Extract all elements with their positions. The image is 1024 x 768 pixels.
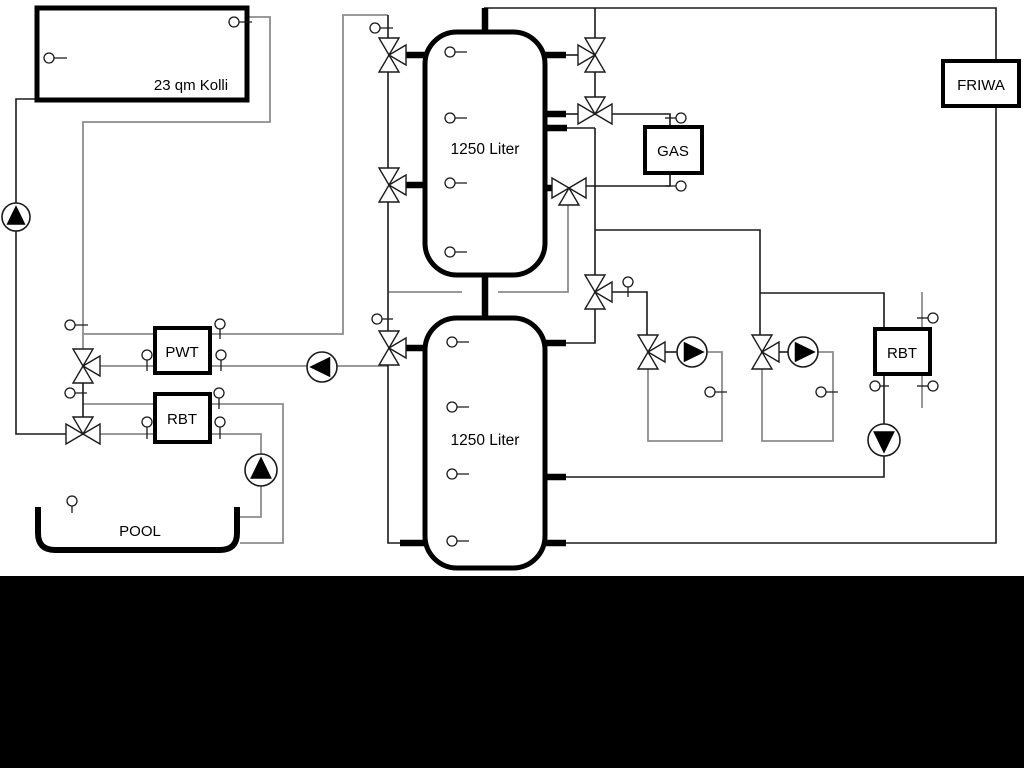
rbt-left-box-label: RBT <box>167 411 197 428</box>
sensor-bulb-icon <box>372 314 382 324</box>
collector-box-label: 23 qm Kolli <box>154 77 228 94</box>
heating1-supply-pipe <box>612 292 647 335</box>
heating1-pump <box>677 337 707 367</box>
sensor-bulb-icon <box>44 53 54 63</box>
sensor-bulb-icon <box>65 388 75 398</box>
sensor-bulb-icon <box>816 387 826 397</box>
left-riser-d <box>388 365 402 543</box>
sensor-bulb-icon <box>676 113 686 123</box>
sensor-bulb-icon <box>447 402 457 412</box>
sensor-bulb-icon <box>142 417 152 427</box>
valve-tank2-left <box>379 331 406 365</box>
valve-gas-supply <box>578 97 612 124</box>
tank2-upper-right-pipe <box>566 309 595 343</box>
pool-pump <box>245 454 277 486</box>
sensor-rbt-out-top <box>214 388 224 409</box>
sensor-bulb-icon <box>142 350 152 360</box>
sensor-rbt-in-left <box>142 417 152 439</box>
pwt-pump <box>307 352 337 382</box>
sensor-bulb-icon <box>928 381 938 391</box>
valve-tank1-right-top <box>578 38 605 72</box>
sensor-consumer-flow <box>917 313 938 323</box>
rbt-right-box-label: RBT <box>887 345 917 362</box>
sensor-bulb-icon <box>215 319 225 329</box>
sensor-consumer-return <box>917 381 938 391</box>
sensor-gas-return <box>665 181 686 191</box>
heating-piping-diagram: 23 qm KolliPWTRBTGASFRIWARBT1250 Liter12… <box>0 0 1024 768</box>
valve-pool-mixing <box>66 417 100 444</box>
sensor-rbt-out-right <box>215 417 225 439</box>
valve-gas-return <box>552 178 586 205</box>
schematic-page: 23 qm KolliPWTRBTGASFRIWARBT1250 Liter12… <box>0 0 1024 768</box>
sensor-bulb-icon <box>447 536 457 546</box>
gas-box-label: GAS <box>657 143 689 160</box>
sensor-bulb-icon <box>216 350 226 360</box>
valve-tank1-left-top <box>379 38 406 72</box>
sensor-bulb-icon <box>215 417 225 427</box>
pool-label: POOL <box>119 523 161 540</box>
sensor-heating1-return <box>705 387 727 397</box>
sensor-heating2-return <box>816 387 838 397</box>
bottom-black-bar <box>0 576 1024 768</box>
sensor-pwt-out-top <box>215 319 225 339</box>
sensor-distribution <box>623 277 633 297</box>
buffer-tank-1-label: 1250 Liter <box>451 141 520 158</box>
sensor-pwt-in-left <box>142 350 152 371</box>
sensor-pwt-out-right <box>216 350 226 371</box>
sensor-bulb-icon <box>447 469 457 479</box>
sensor-bulb-icon <box>676 181 686 191</box>
sensor-bulb-icon <box>870 381 880 391</box>
solar-pump <box>2 203 30 231</box>
sensor-bulb-icon <box>445 113 455 123</box>
sensor-left-riser-top <box>370 23 393 33</box>
pwt-box-label: PWT <box>165 344 198 361</box>
sensor-bulb-icon <box>370 23 380 33</box>
valve-pwt-mixing <box>73 349 100 383</box>
valve-heating1-mixing <box>638 335 665 369</box>
heating2-pump <box>788 337 818 367</box>
sensor-bulb-icon <box>445 247 455 257</box>
rbt-left-lower-pipe-b <box>240 486 261 517</box>
sensor-bulb-icon <box>65 320 75 330</box>
valve-heating2-mixing <box>752 335 779 369</box>
valve-tank1-left-bottom <box>379 168 406 202</box>
solar-supply-pipe <box>16 99 66 434</box>
sensor-bulb-icon <box>67 496 77 506</box>
sensor-bulb-icon <box>447 337 457 347</box>
sensor-bulb-icon <box>229 17 239 27</box>
sensor-bulb-icon <box>705 387 715 397</box>
sensor-tank2-valve <box>372 314 393 324</box>
heating2-supply-pipe <box>595 230 760 335</box>
buffer-tank-2-label: 1250 Liter <box>451 432 520 449</box>
friwa-box-label: FRIWA <box>957 77 1005 94</box>
sensor-rbt-right-return <box>870 381 889 391</box>
sensor-bulb-icon <box>623 277 633 287</box>
sensor-pool-water <box>67 496 77 513</box>
sensor-bulb-icon <box>445 47 455 57</box>
rbt-right-pump <box>868 424 900 456</box>
valve-distribution <box>585 275 612 309</box>
rbt-right-pump-pipe-b <box>566 456 884 477</box>
sensor-collector-return <box>65 320 88 330</box>
rbt-right-supply-pipe <box>760 293 884 329</box>
sensor-bulb-icon <box>214 388 224 398</box>
sensor-bulb-icon <box>928 313 938 323</box>
sensor-bulb-icon <box>445 178 455 188</box>
